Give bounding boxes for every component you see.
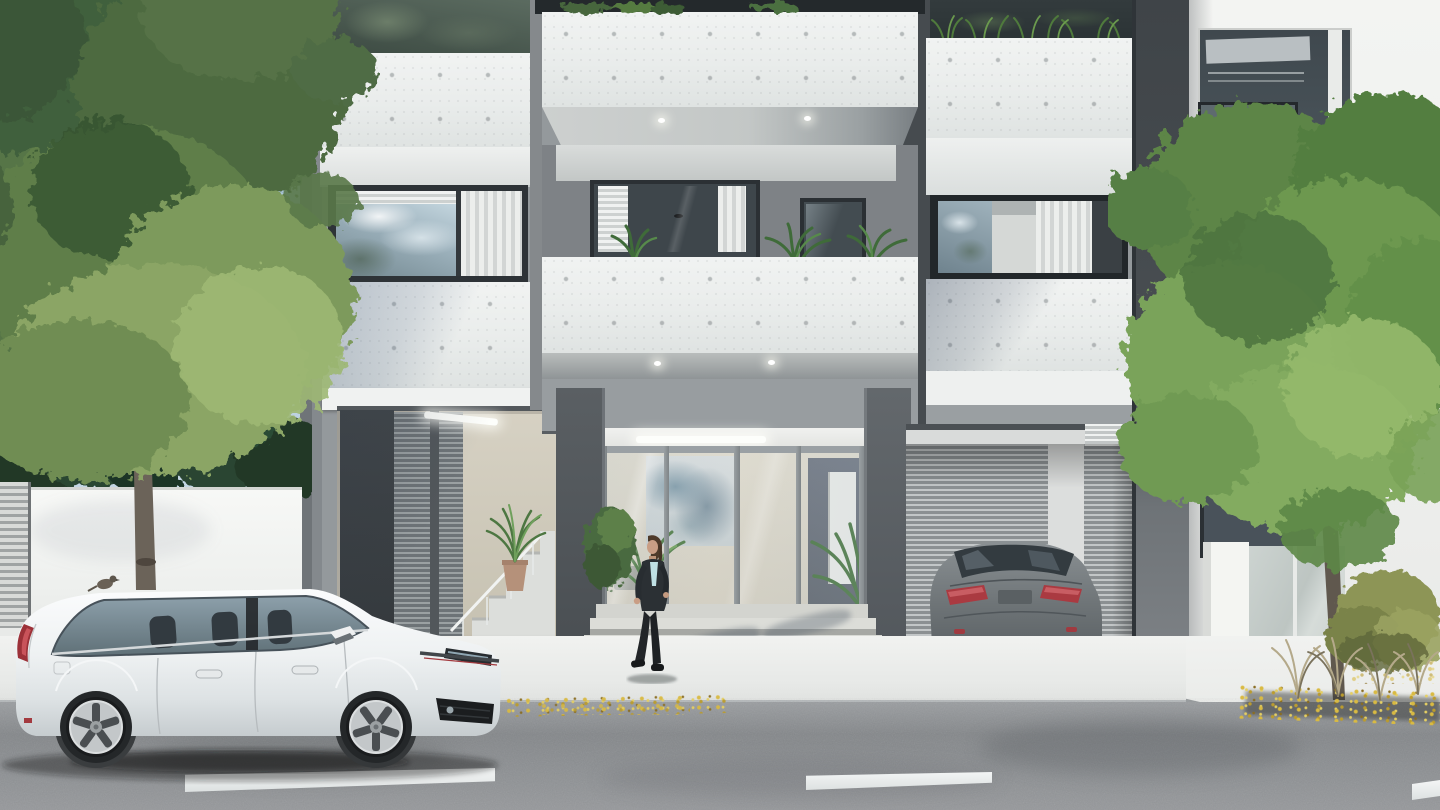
facade-seam [530, 0, 542, 410]
recessed-downlight [804, 116, 811, 121]
car-rear-reflector [24, 718, 32, 723]
rightbay-slab-band [926, 138, 1132, 195]
shrub [1324, 570, 1440, 672]
window-curtain [1036, 201, 1092, 273]
center-soffit [542, 107, 918, 145]
garage-top-shadow [906, 444, 1132, 488]
roof-plants [548, 0, 838, 16]
center-parapet-2f [542, 257, 918, 353]
center-parapet-top [542, 12, 918, 107]
autumn-leaves-drift [540, 703, 690, 715]
white-hatchback [0, 558, 520, 798]
left-tree [0, 0, 420, 640]
car-b-pillar [246, 598, 258, 650]
ornamental-grasses [1260, 556, 1440, 708]
center-shutterbox [556, 145, 896, 181]
window-glass [938, 201, 992, 273]
center-soffit-2f [542, 353, 918, 379]
rendering-scene [0, 0, 1440, 810]
bird [88, 576, 120, 592]
window-curtain [461, 191, 522, 276]
car-fog-light [447, 707, 454, 714]
rightbay-slab-band-2 [926, 371, 1132, 405]
rightbay-window [930, 195, 1128, 279]
car-rear-wheel [60, 691, 132, 763]
car-door-handle [196, 670, 222, 678]
recessed-downlight [654, 361, 661, 366]
rightbay-parapet [926, 38, 1132, 138]
car-door-handle [292, 666, 318, 674]
rightbay-parapet-2f [926, 279, 1132, 371]
window-interior-wall [992, 201, 1036, 273]
tree-shadow-wedge [926, 279, 1132, 371]
woman-pedestrian [626, 532, 680, 684]
recessed-downlight [768, 360, 775, 365]
balcony-plants [610, 222, 920, 262]
road-patch [980, 720, 1300, 775]
glass-top-rail [600, 446, 866, 453]
recessed-downlight [658, 118, 665, 123]
lobby-ceiling-light [636, 436, 766, 443]
car-front-wheel [340, 691, 412, 763]
